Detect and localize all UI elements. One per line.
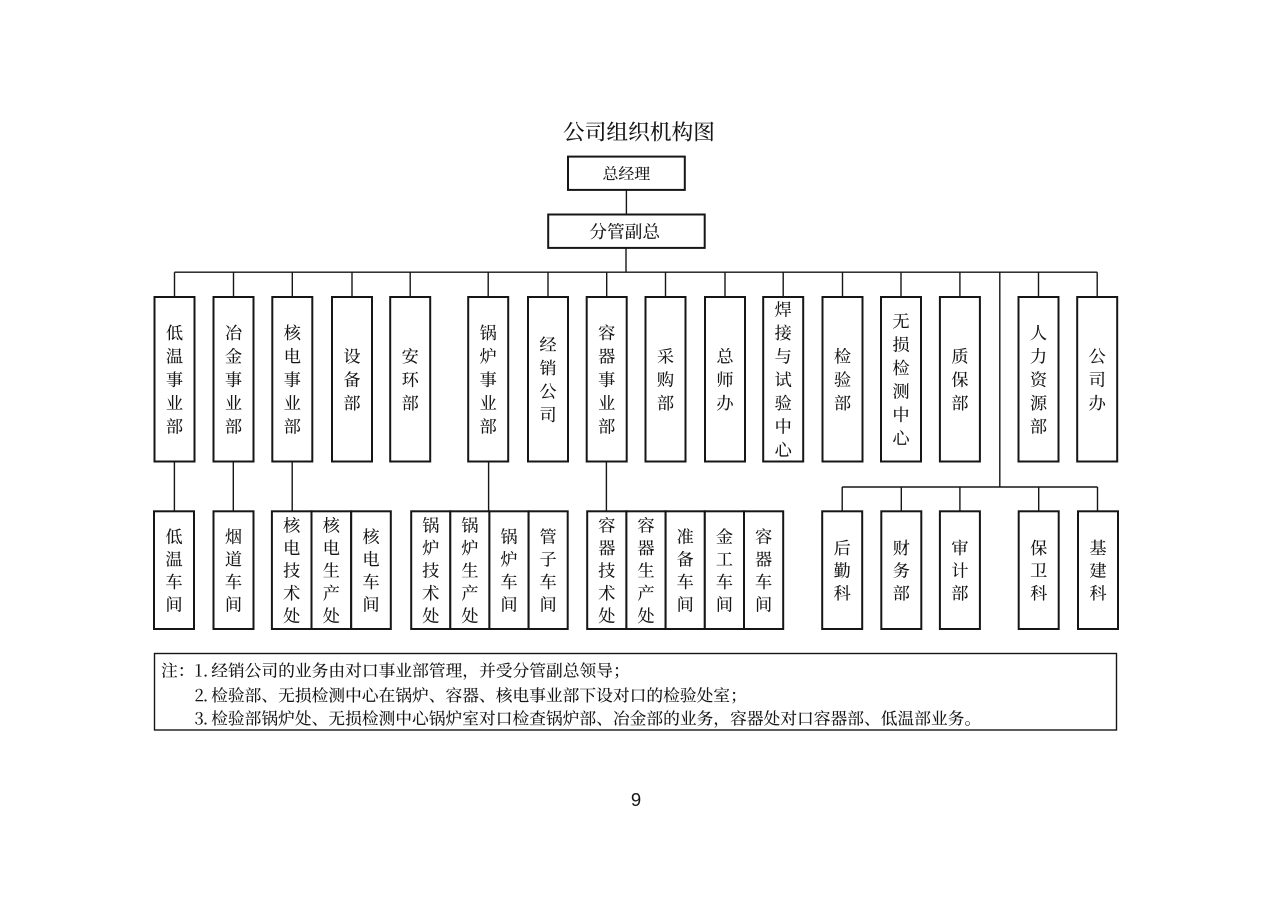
- svg-text:9: 9: [631, 789, 641, 810]
